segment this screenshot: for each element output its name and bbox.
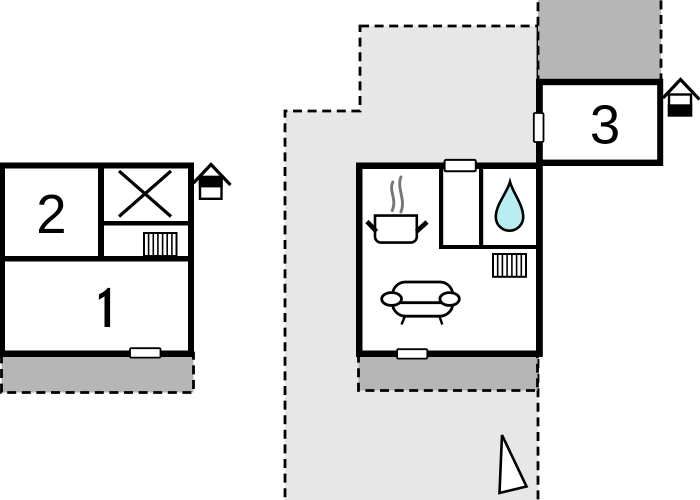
svg-text:3: 3	[590, 95, 620, 156]
svg-text:2: 2	[36, 184, 66, 245]
